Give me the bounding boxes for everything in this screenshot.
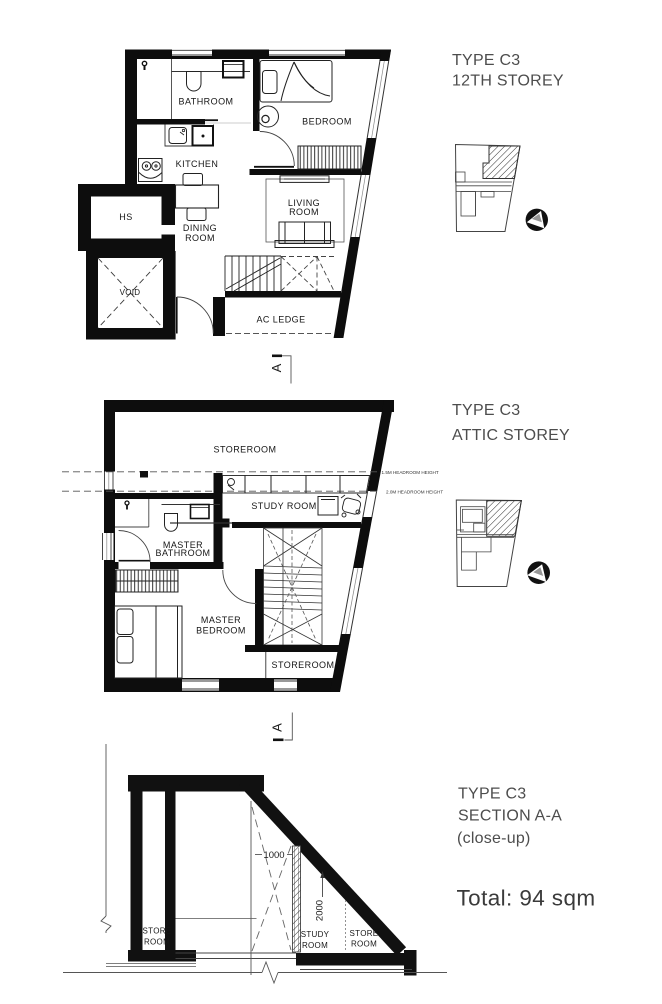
svg-text:2000: 2000 bbox=[315, 900, 326, 921]
svg-text:MASTER: MASTER bbox=[201, 615, 241, 625]
svg-text:VOID: VOID bbox=[120, 288, 141, 297]
svg-text:2.0M HEADROOM HEIGHT: 2.0M HEADROOM HEIGHT bbox=[386, 490, 443, 495]
svg-text:ROOM: ROOM bbox=[302, 941, 328, 950]
svg-text:A: A bbox=[269, 363, 284, 372]
svg-text:A: A bbox=[270, 723, 285, 732]
svg-text:ROOM: ROOM bbox=[289, 207, 319, 217]
svg-text:SECTION A-A: SECTION A-A bbox=[458, 808, 562, 825]
svg-text:STORE: STORE bbox=[143, 927, 172, 936]
svg-text:1.5M HEADROOM HEIGHT: 1.5M HEADROOM HEIGHT bbox=[382, 470, 439, 475]
svg-text:BATHROOM: BATHROOM bbox=[156, 548, 211, 558]
svg-text:STUDY: STUDY bbox=[301, 930, 330, 939]
svg-text:ROOM: ROOM bbox=[351, 940, 377, 949]
svg-text:Total: 94 sqm: Total: 94 sqm bbox=[457, 886, 596, 911]
svg-text:HS: HS bbox=[119, 212, 132, 222]
svg-text:DINING: DINING bbox=[183, 223, 217, 233]
svg-text:KITCHEN: KITCHEN bbox=[176, 159, 219, 169]
svg-text:STUDY ROOM: STUDY ROOM bbox=[251, 501, 316, 511]
svg-text:STORE: STORE bbox=[350, 929, 379, 938]
svg-text:TYPE C3: TYPE C3 bbox=[452, 52, 520, 69]
svg-text:(close-up): (close-up) bbox=[457, 830, 531, 847]
svg-text:1000: 1000 bbox=[263, 850, 284, 861]
svg-text:ATTIC STOREY: ATTIC STOREY bbox=[452, 427, 570, 444]
svg-text:AC LEDGE: AC LEDGE bbox=[256, 315, 305, 325]
svg-text:12TH STOREY: 12TH STOREY bbox=[452, 73, 564, 90]
svg-text:BEDROOM: BEDROOM bbox=[196, 626, 246, 636]
svg-text:BEDROOM: BEDROOM bbox=[302, 117, 352, 127]
svg-text:TYPE C3: TYPE C3 bbox=[452, 402, 520, 419]
svg-text:TYPE C3: TYPE C3 bbox=[458, 786, 526, 803]
svg-text:ROOM: ROOM bbox=[144, 938, 170, 947]
svg-text:STOREROOM: STOREROOM bbox=[214, 445, 277, 455]
svg-text:ROOM: ROOM bbox=[185, 233, 215, 243]
svg-text:BATHROOM: BATHROOM bbox=[179, 97, 234, 107]
svg-text:STOREROOM: STOREROOM bbox=[272, 660, 335, 670]
